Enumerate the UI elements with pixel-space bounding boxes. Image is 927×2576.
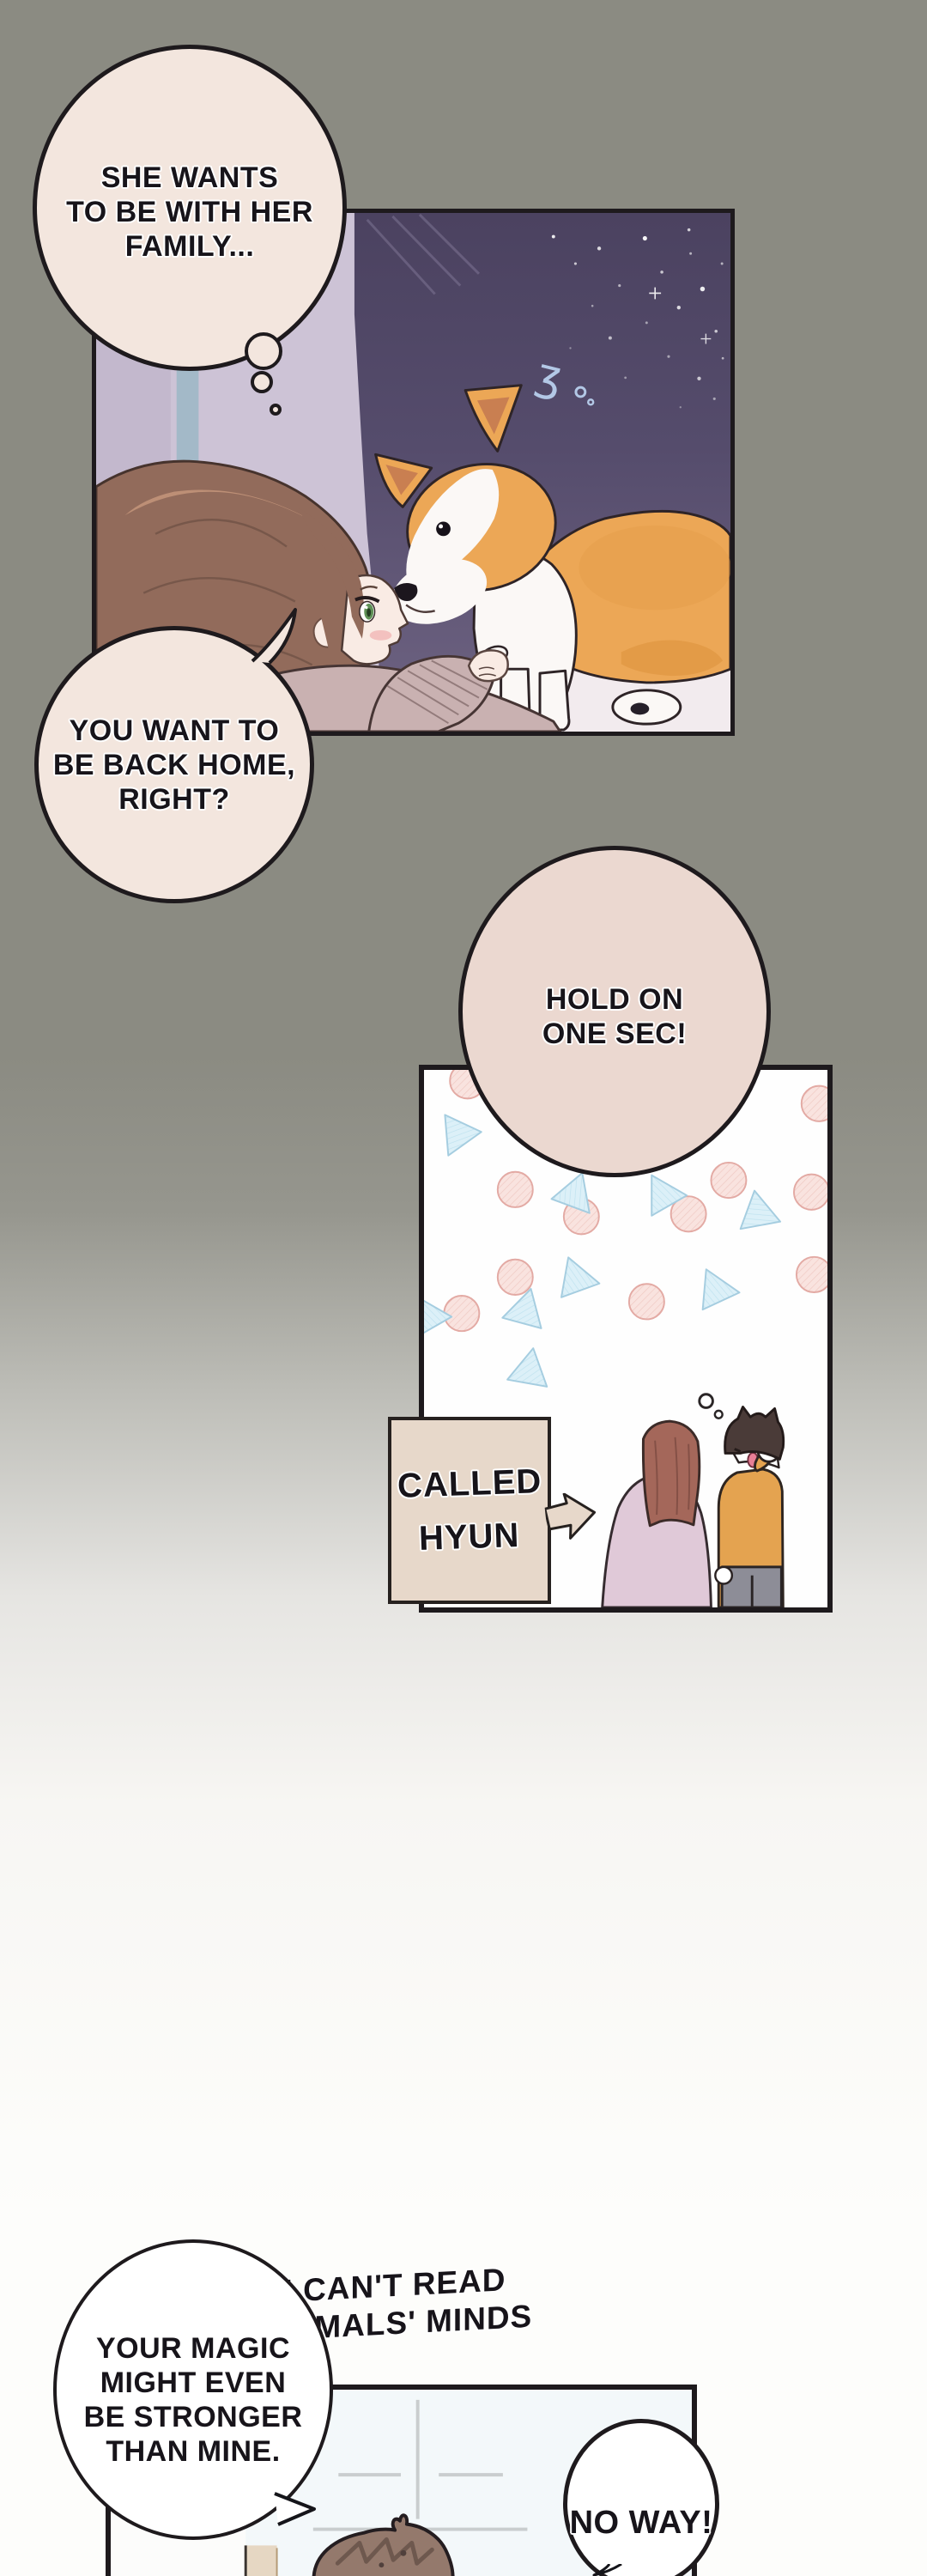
bubble-line: FAMILY...: [125, 229, 255, 264]
bubble-line: MIGHT EVEN: [100, 2366, 287, 2400]
bubble-line: RIGHT?: [118, 782, 230, 817]
bubble-tail: [592, 2564, 630, 2576]
callout-called-hyun: CALLED HYUN: [388, 1417, 551, 1604]
speech-bubble-back-home: YOU WANT TO BE BACK HOME, RIGHT?: [34, 626, 314, 903]
bubble-tail: [245, 606, 302, 666]
bubble-line: BE BACK HOME,: [53, 748, 295, 782]
bubble-line: BE STRONGER: [84, 2400, 303, 2434]
thought-trail-bubble: [270, 404, 282, 416]
bubble-tail: [271, 2490, 319, 2528]
thought-trail-bubble: [245, 332, 282, 370]
bubble-line: NO WAY!: [570, 2506, 713, 2540]
bubble-line: ONE SEC!: [542, 1017, 687, 1051]
bubble-line: HOLD ON: [546, 982, 683, 1017]
arrow-right-icon: [543, 1490, 602, 1545]
bubble-line: YOUR MAGIC: [96, 2331, 290, 2366]
bubble-line: THAN MINE.: [106, 2434, 280, 2469]
thought-dot: [715, 1411, 723, 1419]
speech-bubble-hold-on: HOLD ON ONE SEC!: [458, 846, 771, 1177]
callout-line: CALLED: [397, 1455, 542, 1513]
bubble-line: TO BE WITH HER: [66, 195, 313, 229]
wardrobe: [245, 2545, 276, 2576]
thought-trail-bubble: [251, 371, 273, 393]
callout-line: HYUN: [418, 1509, 520, 1565]
webtoon-page: ʒ: [0, 0, 927, 2576]
bubble-line: YOU WANT TO: [70, 714, 280, 748]
bubble-line: SHE WANTS: [101, 161, 279, 195]
thought-bubble-family: SHE WANTS TO BE WITH HER FAMILY...: [33, 45, 347, 371]
thought-dot: [700, 1394, 713, 1408]
speech-bubble-no-way: NO WAY!: [563, 2419, 719, 2576]
